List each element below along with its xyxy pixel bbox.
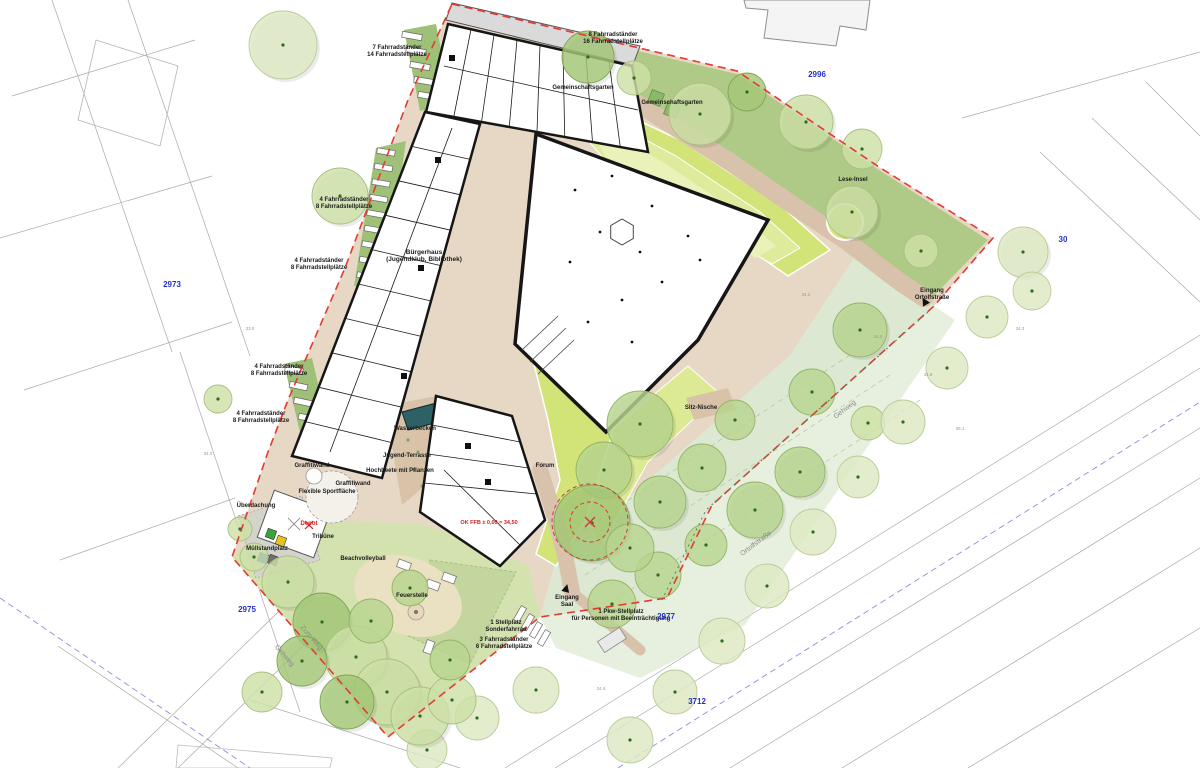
label-forum-line: Forum	[536, 463, 555, 469]
label-feuerstelle-line: Feuerstelle	[396, 593, 428, 599]
cadastral-line	[962, 52, 1200, 118]
parcel-2996: 2996	[808, 70, 826, 79]
cadastral-line	[1092, 118, 1200, 220]
column-dot	[687, 235, 690, 238]
stair-core	[401, 373, 407, 379]
label-buergerhaus-line: (Jugendklub, Bibliothek)	[386, 256, 462, 263]
label-bike-3: 3 Fahrradständer6 Fahrradstellplätze	[476, 637, 533, 650]
label-garden-2-line: Gemeinschaftsgarten	[641, 100, 703, 106]
label-depot: Depot	[301, 521, 318, 527]
label-bike-3-line: 6 Fahrradstellplätze	[476, 644, 533, 650]
site-plan-canvas: 7 Fahrradständer14 Fahrradstellplätze8 F…	[0, 0, 1200, 768]
column-dot	[639, 251, 642, 254]
label-ueberdachung: Überdachung	[237, 502, 276, 509]
label-bike-4c-line: 8 Fahrradstellplätze	[251, 371, 308, 377]
spot-height: 34.3	[1016, 326, 1025, 331]
spot-height: 34.5	[874, 334, 883, 339]
tree	[926, 347, 968, 389]
stair-core	[418, 265, 424, 271]
label-sportflaeche: Flexible Sportfläche	[298, 489, 356, 495]
tree	[430, 640, 470, 680]
parcel-boundary-blue-line	[0, 598, 250, 768]
stair-core	[465, 443, 471, 449]
tree	[790, 509, 836, 555]
label-eingang-saal-line: Eingang	[555, 595, 579, 601]
spot-height: 34.8	[924, 372, 933, 377]
spot-height-line: 34.5	[874, 334, 883, 339]
tree	[685, 524, 727, 566]
label-bike-4d: 4 Fahrradständer8 Fahrradstellplätze	[233, 411, 290, 424]
level-ffb: OK FFB ± 0,00 = 34,50	[460, 520, 517, 526]
tree	[606, 524, 654, 572]
tree	[617, 61, 651, 95]
label-eingang-saal-line: Saal	[561, 602, 574, 608]
label-lese-insel: Lese-Insel	[838, 177, 868, 183]
label-bike-4b-line: 4 Fahrradständer	[294, 258, 344, 264]
column-dot	[587, 321, 590, 324]
neighbor-parcel-nw	[78, 40, 178, 146]
feuerstelle-dot	[414, 610, 418, 614]
tree	[204, 385, 232, 413]
label-sitz-nische: Sitz-Nische	[685, 405, 718, 411]
label-graffitiwand-2: Graffitiwand	[335, 481, 370, 487]
spot-height-line: 34.2	[802, 292, 811, 297]
label-buergerhaus-line: Bürgerhaus	[406, 249, 443, 256]
label-bike-4d-line: 8 Fahrradstellplätze	[233, 418, 290, 424]
label-bike-4a-line: 8 Fahrradstellplätze	[316, 204, 373, 210]
label-tribuene-line: Tribüne	[312, 534, 334, 540]
parcel-2975: 2975	[238, 605, 256, 614]
label-bike-4c: 4 Fahrradständer8 Fahrradstellplätze	[251, 364, 308, 377]
label-eingang-ost-line: Eingang	[920, 288, 944, 294]
label-bike-7: 7 Fahrradständer14 Fahrradstellplätze	[367, 45, 427, 58]
label-sportflaeche-line: Flexible Sportfläche	[298, 489, 356, 495]
tree	[904, 234, 938, 268]
tree	[607, 717, 653, 763]
label-bike-4b: 4 Fahrradständer8 Fahrradstellplätze	[291, 258, 348, 271]
tree	[851, 406, 885, 440]
parcel-3712-line: 3712	[688, 697, 706, 706]
label-sonderfahrrad: 1 StellplatzSonderfahrrad	[485, 620, 527, 633]
tree	[699, 618, 745, 664]
label-jugend-terrasse-line: Jugend-Terrasse	[383, 453, 432, 459]
tree	[1013, 272, 1051, 310]
label-bike-8-line: 16 Fahrradstellplätze	[583, 39, 643, 45]
label-sitz-nische-line: Sitz-Nische	[685, 405, 718, 411]
stair-core	[485, 479, 491, 485]
column-dot	[699, 259, 702, 262]
label-ueberdachung-line: Überdachung	[237, 502, 276, 509]
parcel-3712: 3712	[688, 697, 706, 706]
bike-rack	[537, 630, 550, 647]
label-hochbeete-line: Hochbeete mit Pflanzen	[366, 468, 434, 474]
column-dot	[574, 189, 577, 192]
label-beachvolleyball: Beachvolleyball	[340, 556, 386, 562]
cadastral-line	[1040, 152, 1200, 302]
spot-height-line: 34.0	[204, 451, 213, 456]
spot-height-line: 33.8	[246, 326, 255, 331]
label-bike-4a-line: 4 Fahrradständer	[319, 197, 369, 203]
planting-dot	[407, 439, 410, 442]
label-muellstandplatz-line: Müllstandplatz	[246, 546, 288, 552]
label-beachvolleyball-line: Beachvolleyball	[340, 556, 386, 562]
label-graffitiwand-1: Graffitiwand	[294, 463, 329, 469]
label-garden-1-line: Gemeinschaftsgarten	[552, 85, 614, 91]
label-sonderfahrrad-line: 1 Stellplatz	[490, 620, 521, 626]
tree	[837, 456, 879, 498]
tree	[678, 444, 726, 492]
label-muellstandplatz: Müllstandplatz	[246, 546, 288, 552]
cadastral-line	[24, 322, 232, 390]
tree	[842, 129, 882, 169]
column-dot	[569, 261, 572, 264]
parcel-2977-line: 2977	[657, 612, 675, 621]
label-tribuene: Tribüne	[312, 534, 334, 540]
spot-height-line: 34.3	[1016, 326, 1025, 331]
spot-height: 35.1	[956, 426, 965, 431]
column-dot	[651, 205, 654, 208]
label-garden-2: Gemeinschaftsgarten	[641, 100, 703, 106]
label-wasserbecken: Wasserbecken	[394, 426, 436, 432]
cadastral-line	[968, 628, 1200, 768]
label-bike-8-line: 8 Fahrradständer	[588, 32, 638, 38]
tree	[228, 517, 252, 541]
label-eingang-ost-line: Ortolfstraße	[915, 295, 950, 301]
spot-height-line: 34.6	[597, 686, 606, 691]
label-sonderfahrrad-line: Sonderfahrrad	[485, 627, 527, 633]
label-bike-4b-line: 8 Fahrradstellplätze	[291, 265, 348, 271]
spot-height: 34.2	[802, 292, 811, 297]
cadastral-line	[0, 176, 212, 238]
neighbor-building-ne	[744, 0, 870, 46]
tree	[653, 670, 697, 714]
stair-core	[435, 157, 441, 163]
level-ffb-line: OK FFB ± 0,00 = 34,50	[460, 520, 517, 526]
label-pkw-line: für Personen mit Beeinträchtigung	[572, 616, 671, 622]
sport-circle-small	[306, 468, 322, 484]
column-dot	[611, 175, 614, 178]
spot-height-line: 35.1	[956, 426, 965, 431]
label-wasserbecken-line: Wasserbecken	[394, 426, 436, 432]
parcel-2973: 2973	[163, 280, 181, 289]
parcel-2996-line: 2996	[808, 70, 826, 79]
label-bike-4d-line: 4 Fahrradständer	[236, 411, 286, 417]
tree	[966, 296, 1008, 338]
neighbor-building-sw	[176, 745, 332, 768]
tree	[881, 400, 925, 444]
tree	[789, 369, 835, 415]
tree	[745, 564, 789, 608]
parcel-30: 30	[1059, 235, 1068, 244]
tree	[998, 227, 1051, 280]
label-feuerstelle: Feuerstelle	[396, 593, 428, 599]
tree	[249, 11, 320, 82]
parcel-2973-line: 2973	[163, 280, 181, 289]
spot-height-line: 34.8	[924, 372, 933, 377]
label-forum: Forum	[536, 463, 555, 469]
spot-height: 34.0	[204, 451, 213, 456]
label-jugend-terrasse: Jugend-Terrasse	[383, 453, 432, 459]
parcel-2977: 2977	[657, 612, 675, 621]
cadastral-line	[842, 548, 1200, 768]
label-depot-line: Depot	[301, 521, 318, 527]
label-hochbeete: Hochbeete mit Pflanzen	[366, 468, 434, 474]
label-bike-7-line: 14 Fahrradstellplätze	[367, 52, 427, 58]
tree	[242, 672, 282, 712]
label-graffitiwand-2-line: Graffitiwand	[335, 481, 370, 487]
column-dot	[661, 281, 664, 284]
cadastral-line	[60, 498, 235, 560]
label-pkw-line: 1 Pkw-Stellplatz	[598, 609, 643, 615]
label-bike-8: 8 Fahrradständer16 Fahrradstellplätze	[583, 32, 643, 45]
stair-core	[449, 55, 455, 61]
tree	[349, 599, 393, 643]
cadastral-line	[1146, 82, 1200, 136]
column-dot	[599, 231, 602, 234]
label-graffitiwand-1-line: Graffitiwand	[294, 463, 329, 469]
tree	[392, 570, 428, 606]
label-bike-4a: 4 Fahrradständer8 Fahrradstellplätze	[316, 197, 373, 210]
label-garden-1: Gemeinschaftsgarten	[552, 85, 614, 91]
spot-height: 33.8	[246, 326, 255, 331]
tree	[715, 400, 755, 440]
site-plan-drawing: 7 Fahrradständer14 Fahrradstellplätze8 F…	[0, 0, 1200, 768]
spot-height: 34.6	[597, 686, 606, 691]
label-bike-7-line: 7 Fahrradständer	[372, 45, 422, 51]
label-bike-3-line: 3 Fahrradständer	[479, 637, 529, 643]
tree	[513, 667, 559, 713]
cadastral-line	[58, 646, 238, 768]
parcel-30-line: 30	[1059, 235, 1068, 244]
parcel-2975-line: 2975	[238, 605, 256, 614]
column-dot	[631, 341, 634, 344]
label-lese-insel-line: Lese-Insel	[838, 177, 868, 183]
label-bike-4c-line: 4 Fahrradständer	[254, 364, 304, 370]
cadastral-line	[128, 0, 250, 356]
cadastral-line	[12, 40, 195, 96]
column-dot	[621, 299, 624, 302]
